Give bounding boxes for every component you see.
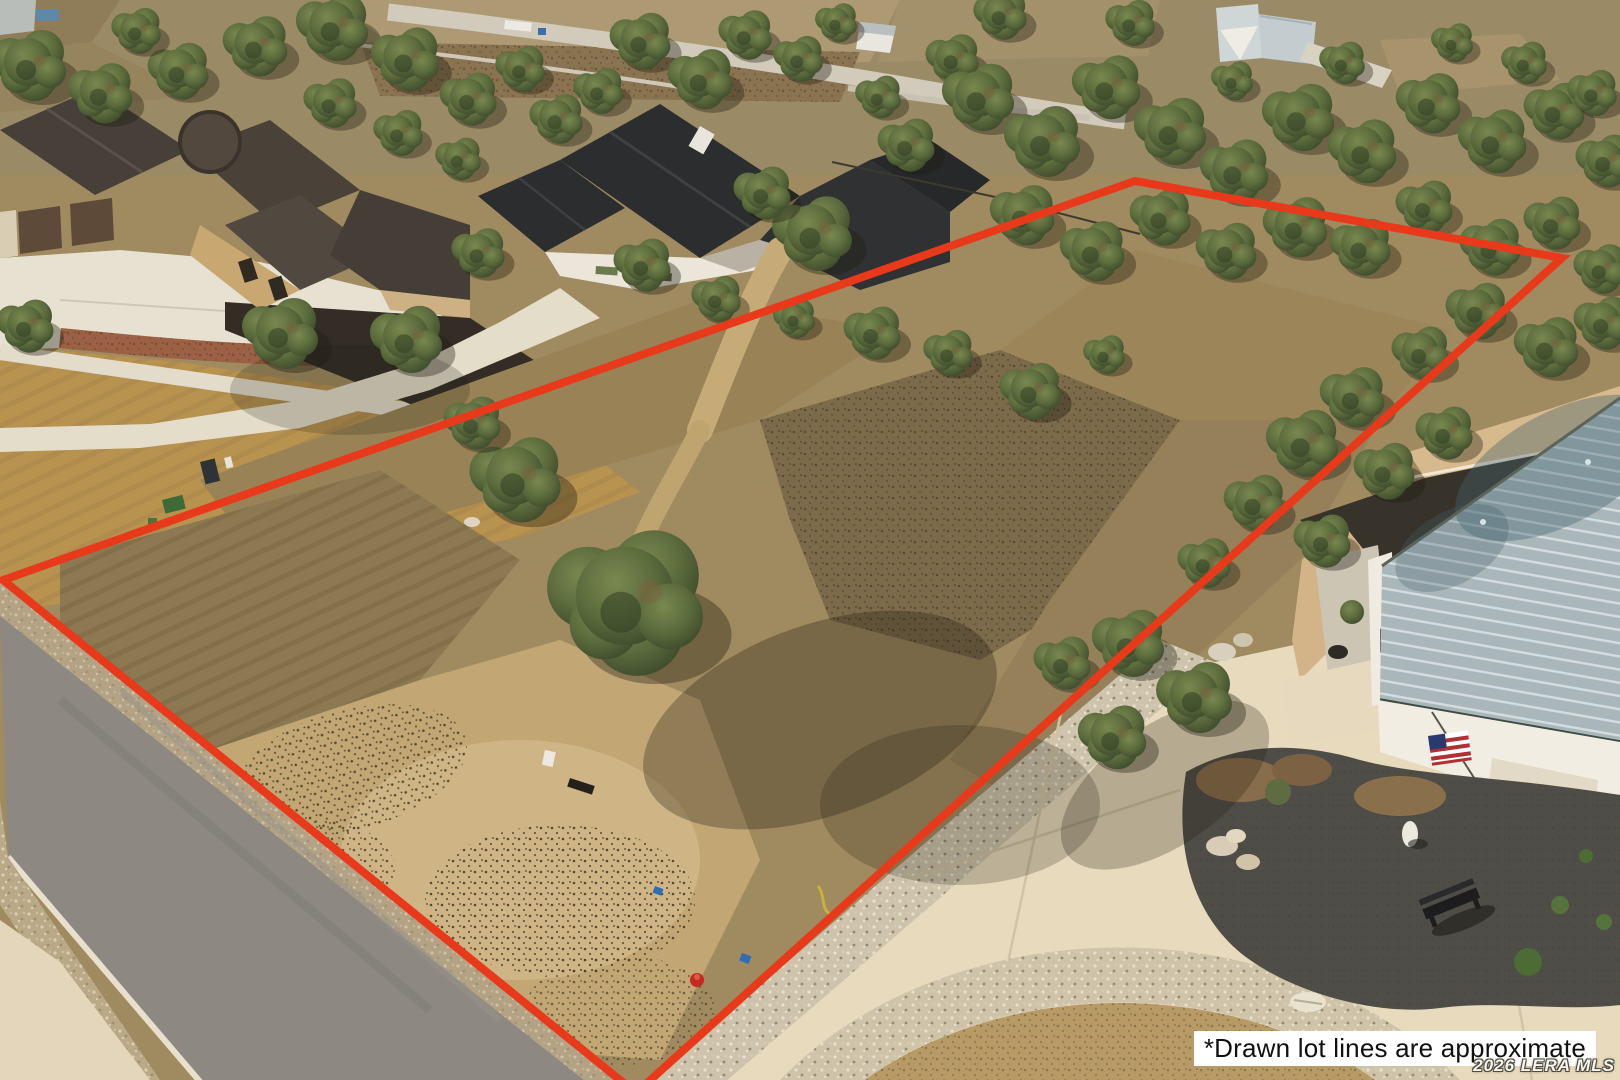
fire-hydrant bbox=[690, 973, 704, 987]
aerial-lot-photo: *Drawn lot lines are approximate 2026 LE… bbox=[0, 0, 1620, 1080]
mls-watermark: 2026 LERA MLS bbox=[1473, 1056, 1615, 1076]
aerial-photo-scene bbox=[0, 0, 1620, 1080]
